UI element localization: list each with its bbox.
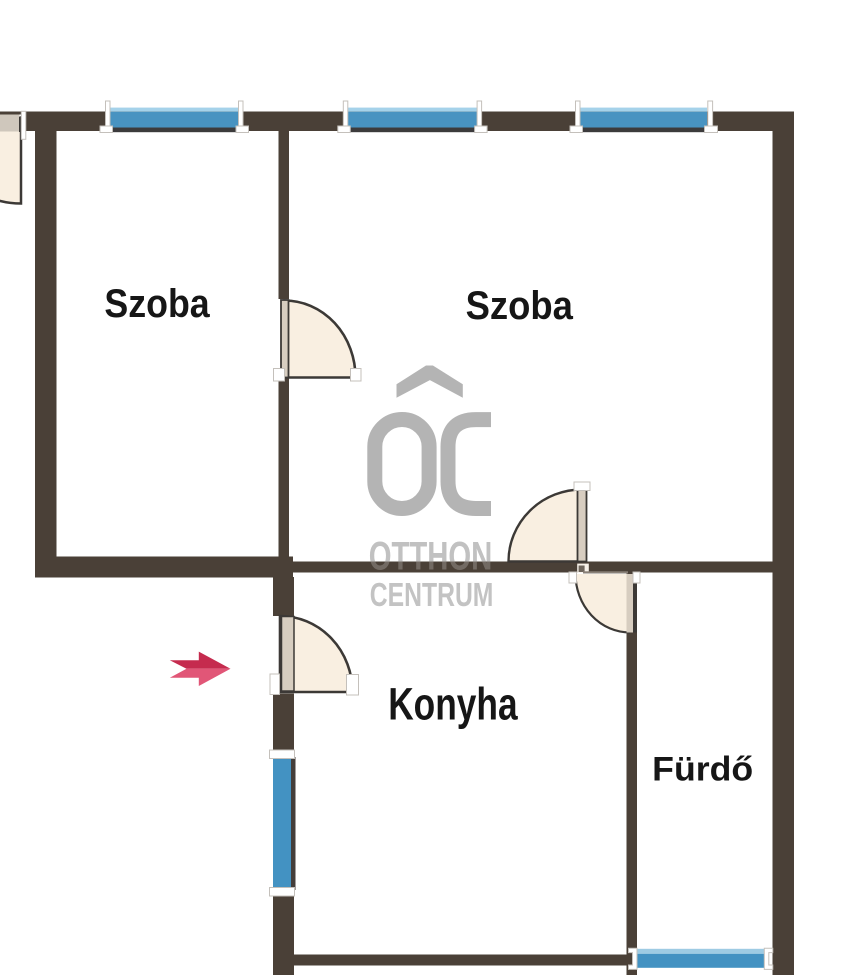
svg-text:Fürdő: Fürdő: [652, 750, 753, 788]
svg-text:Szoba: Szoba: [466, 284, 574, 328]
svg-text:OTTHON: OTTHON: [369, 535, 493, 579]
svg-text:CENTRUM: CENTRUM: [370, 576, 494, 614]
svg-text:Szoba: Szoba: [104, 282, 210, 326]
svg-text:Konyha: Konyha: [388, 678, 518, 729]
